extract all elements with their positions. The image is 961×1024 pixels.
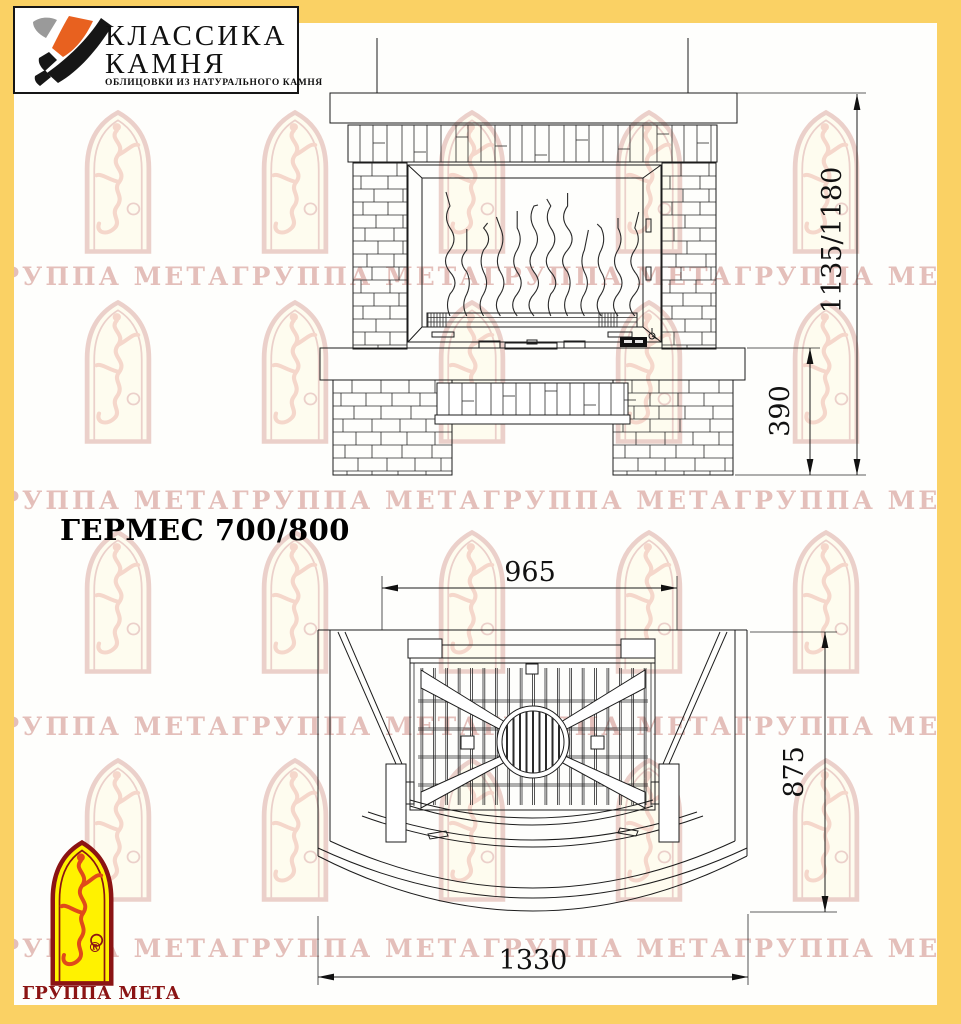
hinge-top xyxy=(646,219,651,232)
brand-box: КЛАССИКА КАМНЯ ОБЛИЦОВКИ ИЗ НАТУРАЛЬНОГО… xyxy=(13,6,299,94)
base-right-bricks xyxy=(613,380,733,475)
hearth-shelf xyxy=(320,348,745,380)
door-arcs xyxy=(410,800,653,825)
grille-end-hatch xyxy=(428,313,617,327)
registered-mark: ® xyxy=(88,940,102,956)
gray-stroke xyxy=(33,18,57,38)
air-slot-left xyxy=(432,332,454,337)
brand-title-line2: КАМНЯ xyxy=(105,48,226,81)
brand-brushstrokes-icon xyxy=(21,10,113,92)
front-height-label: 1135/1180 xyxy=(817,167,848,314)
base-height-label: 390 xyxy=(765,385,796,437)
corner-block-right xyxy=(621,639,655,658)
model-title: ГЕРМЕС 700/800 xyxy=(60,513,350,547)
depth-label: 875 xyxy=(779,746,810,798)
plan-view xyxy=(318,630,747,911)
front-dimensions: 1135/1180 390 xyxy=(735,93,866,475)
catalog-page: { "brand_box": { "line1": "КЛАССИКА", "l… xyxy=(0,0,961,1024)
mantel-shelf xyxy=(330,93,737,123)
footer-brand-name: ГРУППА МЕТА xyxy=(22,984,180,1004)
corner-block-left xyxy=(408,639,442,658)
wood-niche xyxy=(452,424,613,475)
upper-tile-band xyxy=(348,125,717,162)
x-brace-lower-right xyxy=(561,756,645,808)
firebox-insert-plan xyxy=(408,639,655,839)
front-pillar-right xyxy=(659,764,679,842)
upper-tile-joints xyxy=(360,125,711,162)
hinge-bottom xyxy=(646,267,651,280)
base-left-bricks xyxy=(333,380,452,475)
flue-tick xyxy=(526,664,538,674)
chimney-lines xyxy=(377,38,688,93)
brand-subtitle: ОБЛИЦОВКИ ИЗ НАТУРАЛЬНОГО КАМНЯ xyxy=(105,78,323,88)
grille-rails xyxy=(427,318,637,323)
air-slot-right xyxy=(608,332,632,337)
front-view xyxy=(320,38,745,475)
flame-decor xyxy=(446,192,640,316)
brand-plate-mark xyxy=(624,340,632,343)
base-tile-lip xyxy=(435,415,630,424)
left-column-bricks xyxy=(353,163,407,349)
base-section xyxy=(333,380,733,475)
hearth-arcs xyxy=(362,812,703,847)
opening-width-label: 965 xyxy=(504,557,556,588)
left-brick-column xyxy=(353,163,407,349)
footer-logo: ® xyxy=(46,838,166,992)
front-pillar-left xyxy=(386,764,406,842)
right-column-bricks xyxy=(662,163,716,349)
total-width-label: 1330 xyxy=(499,945,568,976)
grille-bar xyxy=(427,313,637,327)
base-pier-left xyxy=(333,380,452,475)
salamander-arch-logo xyxy=(46,838,118,988)
firebox-insert-front xyxy=(408,165,661,349)
bow-front-arcs xyxy=(318,841,747,911)
right-brick-column xyxy=(662,163,716,349)
clamp-left xyxy=(461,736,474,749)
clamp-right xyxy=(591,736,604,749)
base-pier-right xyxy=(613,380,733,475)
brand-plate-mark2 xyxy=(635,340,643,343)
insert-top-rail xyxy=(410,658,655,663)
